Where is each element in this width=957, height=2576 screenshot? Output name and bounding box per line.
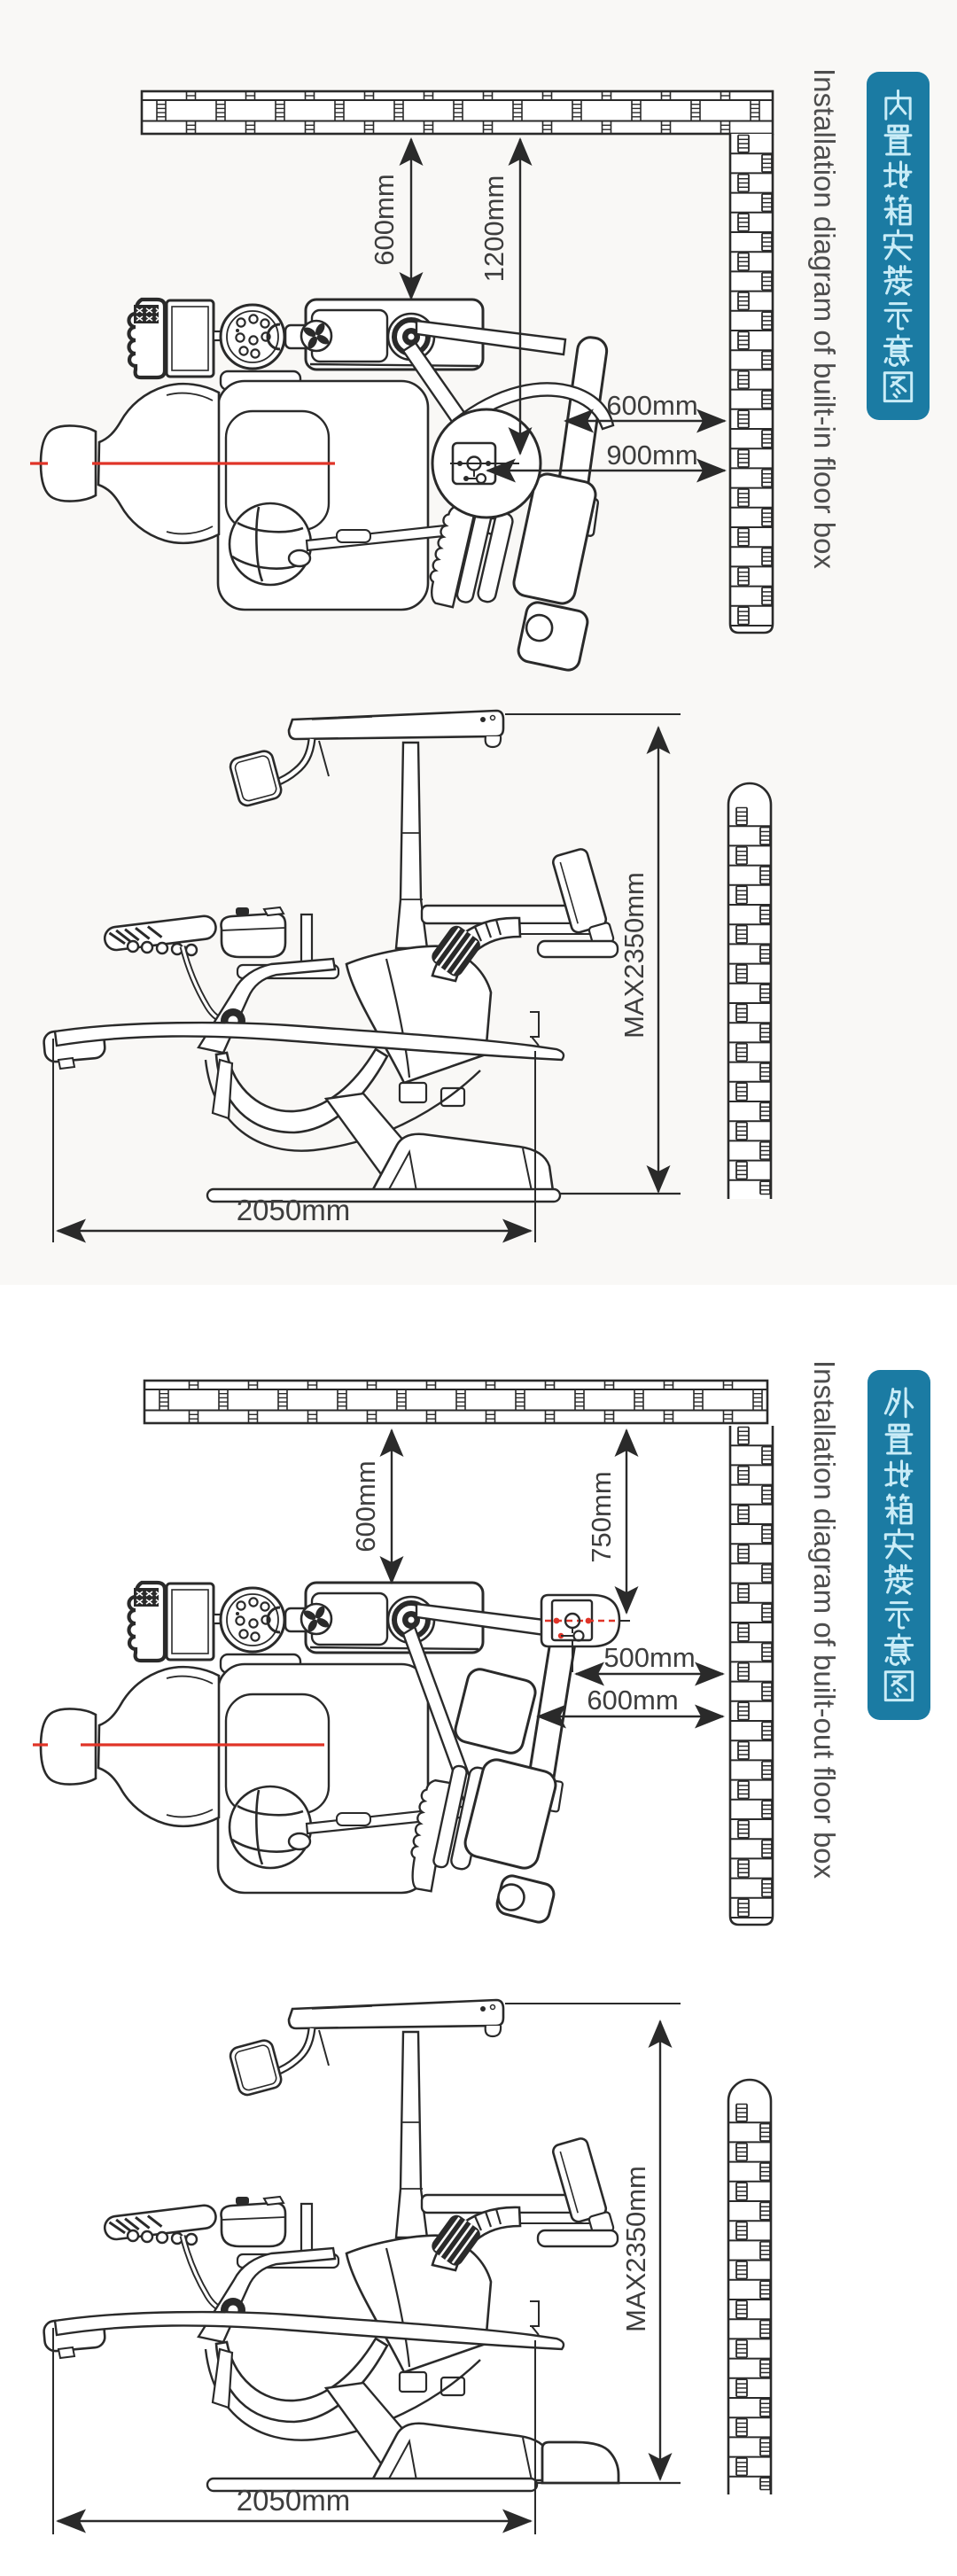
svg-text:500mm: 500mm — [603, 1642, 695, 1673]
svg-text:600mm: 600mm — [606, 390, 697, 421]
svg-text:900mm: 900mm — [606, 440, 697, 471]
svg-text:MAX2350mm: MAX2350mm — [619, 872, 650, 1039]
svg-text:2050mm: 2050mm — [237, 1194, 350, 1226]
svg-text:Installation diagram of built-: Installation diagram of built-in floor b… — [808, 68, 841, 569]
svg-text:600mm: 600mm — [587, 1685, 678, 1716]
svg-text:750mm: 750mm — [586, 1471, 617, 1562]
svg-text:Installation diagram of built-: Installation diagram of built-out floor … — [808, 1360, 841, 1879]
svg-text:2050mm: 2050mm — [237, 2484, 350, 2517]
svg-text:600mm: 600mm — [369, 174, 400, 265]
svg-text:1200mm: 1200mm — [478, 175, 510, 283]
svg-text:600mm: 600mm — [350, 1460, 381, 1552]
svg-text:MAX2350mm: MAX2350mm — [620, 2166, 651, 2332]
